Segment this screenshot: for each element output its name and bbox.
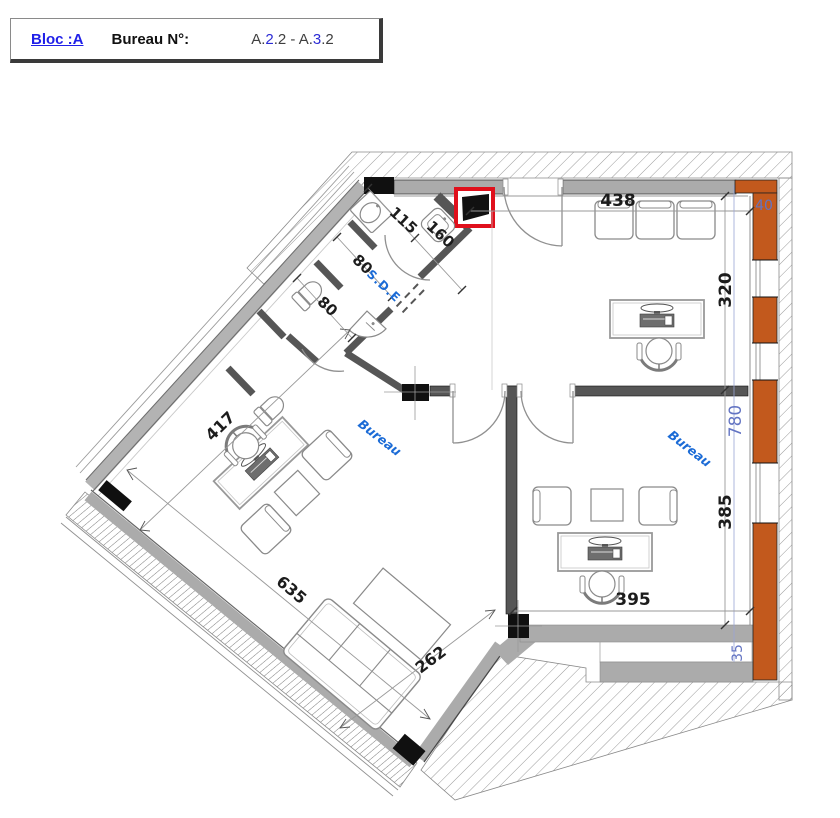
room-label-sde: S.D.E [364, 267, 403, 305]
bottom-wall-band [520, 625, 753, 642]
top-wall [394, 179, 748, 196]
door-left-bureau [453, 391, 505, 443]
orange-wall-segment [753, 380, 777, 463]
chair [239, 502, 293, 556]
window [752, 463, 778, 523]
desk [558, 533, 652, 571]
chair [636, 201, 674, 239]
chair [639, 487, 677, 525]
orange-wall-segment [753, 523, 777, 680]
window [752, 260, 778, 297]
wall-room-divider [506, 386, 517, 614]
wall-mid-horizontal [573, 386, 748, 396]
room-labels: Bureau Bureau S.D.E [355, 267, 714, 470]
drawing-sheet: 438 320 385 395 635 262 417 115 160 80 8… [0, 0, 840, 818]
door-right-bureau [521, 391, 573, 443]
dim-780: 780 [726, 405, 746, 437]
desk [610, 300, 704, 338]
dim-417: 417 [202, 408, 239, 445]
bureau-number-label: Bureau N°: [112, 31, 190, 48]
dim-40: 40 [755, 198, 773, 214]
orange-wall-segment [753, 297, 777, 343]
chair [677, 201, 715, 239]
dim-635: 635 [273, 572, 311, 608]
room-number: A.2.2 - A.3.2 [251, 31, 334, 48]
dim-35: 35 [730, 644, 746, 662]
window [752, 343, 778, 380]
dim-385: 385 [716, 494, 736, 530]
exterior-hatch [66, 152, 792, 800]
hatch-right-band [779, 178, 792, 700]
chair [300, 428, 354, 482]
dim-395: 395 [615, 590, 651, 610]
side-table [591, 489, 623, 521]
office-chair [637, 338, 681, 370]
room-label-bureau-right: Bureau [665, 427, 714, 470]
floor-plan: 438 320 385 395 635 262 417 115 160 80 8… [0, 0, 840, 818]
chair [533, 487, 571, 525]
dashed-opening [402, 290, 424, 313]
shaft-red [456, 189, 493, 226]
dim-115: 115 [386, 203, 421, 238]
bloc-link[interactable]: Bloc :A [31, 31, 84, 48]
dim-438: 438 [600, 191, 636, 211]
column-top-left [364, 177, 394, 194]
orange-wall-top-bar [735, 180, 777, 193]
column-mid [402, 384, 429, 401]
title-block: Bloc :A Bureau N°: A.2.2 - A.3.2 [10, 18, 383, 63]
interior-partitions [430, 384, 748, 614]
dim-320: 320 [716, 272, 736, 308]
side-table [274, 470, 319, 515]
room-label-bureau-left: Bureau [355, 416, 404, 459]
